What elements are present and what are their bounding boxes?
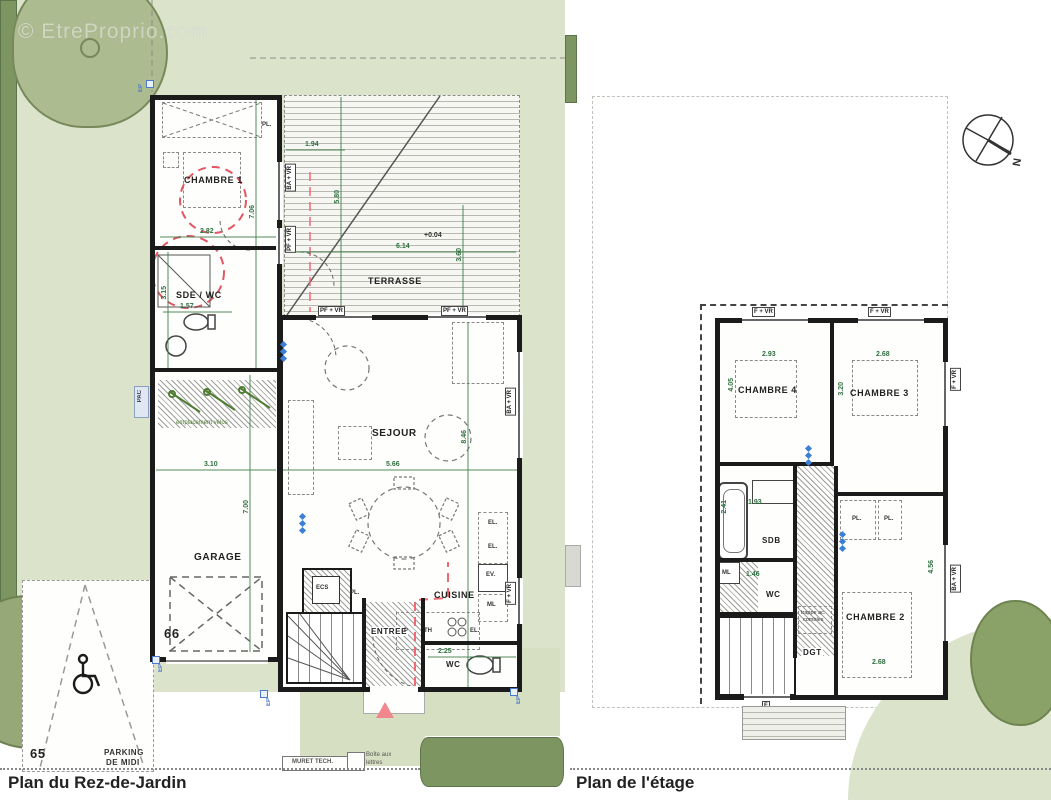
dim-wc-w: 1.46 <box>746 571 760 578</box>
dim-terrasse-h2: 3.60 <box>456 248 463 262</box>
dim-chambre1-h: 7.06 <box>249 205 256 219</box>
dim-sejour-h: 8.46 <box>461 430 468 444</box>
ep-marker-label: EP <box>266 698 272 706</box>
window-ch4-top <box>742 317 808 324</box>
vent-marker-ch2 <box>840 532 845 551</box>
vent-marker-sejour <box>281 342 286 361</box>
ml-upper-label: ML <box>722 570 731 576</box>
floor-plan-image: BA + VR PF + VR PF + VR PF + VR BA + VR … <box>0 0 1051 800</box>
ep-marker-label: EP <box>138 84 144 92</box>
partition-ch4-ch3 <box>830 322 834 466</box>
partition-ch3-bottom <box>834 492 944 496</box>
dim-ch2-w: 2.68 <box>872 659 886 666</box>
dim-sde-h: 3.15 <box>161 286 168 300</box>
entrance-triangle <box>376 702 394 718</box>
lot-number-66: 66 <box>164 626 180 641</box>
door-upper-bottom <box>744 694 790 701</box>
room-label-chambre1: CHAMBRE 1 <box>184 175 243 185</box>
window-tag-ch4: F + VR <box>752 307 775 317</box>
room-label-entree: ENTREE <box>370 627 408 636</box>
dim-cuisine-w: 2.25 <box>438 648 452 655</box>
upper-floor-title-divider <box>570 768 1051 770</box>
window-tag-ch2-right: BA + VR <box>950 565 961 593</box>
parking-label-line1: PARKING <box>104 748 144 757</box>
ep-marker-icon <box>510 688 518 696</box>
appliance-p: P <box>404 628 408 634</box>
closet-label-entree: PL. <box>350 590 359 596</box>
window-ch2-right <box>942 545 949 641</box>
dim-ch3-h: 3.20 <box>838 382 845 396</box>
dim-chambre1-w: 2.82 <box>200 228 214 235</box>
window-tag-ch3-right: F + VR <box>950 368 961 391</box>
window-tag-sejour-top2: PF + VR <box>441 306 468 316</box>
partition-wc-top <box>421 641 519 645</box>
vent-marker-palier <box>806 446 811 465</box>
dim-sdb-w: 1.93 <box>748 499 762 506</box>
appliance-ml: ML <box>487 602 496 608</box>
parking-label-line2: DE MIDI <box>106 758 140 767</box>
window-ch3-right <box>942 362 949 426</box>
watermark: © EtreProprio.com <box>18 20 208 44</box>
entrance-door-opening <box>370 686 418 694</box>
window-chambre1 <box>276 162 283 220</box>
appliance-ev: EV. <box>486 572 495 578</box>
room-label-wc-ground: WC <box>446 660 461 669</box>
window-sejour-right <box>516 352 523 458</box>
dim-ch3-w: 2.68 <box>876 351 890 358</box>
partition-ch4-bottom <box>719 462 834 466</box>
dim-terrasse-level: +0.04 <box>424 232 442 239</box>
room-label-sdb: SDB <box>762 536 781 545</box>
roof-edge-top <box>700 304 948 306</box>
dim-ch2-h: 4.56 <box>928 560 935 574</box>
partition-entree-left <box>362 598 366 688</box>
dim-garage-w: 3.10 <box>204 461 218 468</box>
trappe-label-line1: trappe ac. <box>801 610 825 616</box>
room-label-chambre2: CHAMBRE 2 <box>846 612 905 622</box>
partition-wc-stairs <box>719 612 797 616</box>
dim-terrasse-w1: 1.94 <box>305 141 319 148</box>
window-tag-chambre1: BA + VR <box>285 164 296 192</box>
closet-label-chambre1: PL. <box>262 122 271 128</box>
partition-ch2-left <box>834 466 838 696</box>
ground-floor-title-divider <box>0 768 420 770</box>
exterior-steps <box>742 706 846 740</box>
ep-marker-icon <box>260 690 268 698</box>
trappe-label-line2: combles <box>803 617 823 623</box>
closet2-upper-label: PL. <box>884 516 893 522</box>
ecs-label: ECS <box>316 585 328 591</box>
partition-sdb-wc <box>719 558 797 562</box>
window-tag-cuisine: F + VR <box>505 582 516 605</box>
dim-garage-h: 7.00 <box>243 500 250 514</box>
roof-edge-left <box>700 304 702 704</box>
dim-terrasse-w2: 6.14 <box>396 243 410 250</box>
dim-ch4-h: 4.05 <box>728 378 735 392</box>
room-label-garage: GARAGE <box>194 552 242 563</box>
ep-marker-icon <box>146 80 154 88</box>
room-label-sejour: SEJOUR <box>372 428 417 439</box>
dim-terrasse-h1: 5.80 <box>334 190 341 204</box>
mailbox-label-line1: Boîte aux <box>366 752 391 758</box>
room-label-dgt: DGT <box>802 648 823 657</box>
room-label-terrasse: TERRASSE <box>368 276 422 286</box>
upper-floor-title: Plan de l'étage <box>576 773 694 793</box>
ep-marker-label: EP <box>158 664 164 672</box>
window-tag-sejour-top1: PF + VR <box>318 306 345 316</box>
appliance-el-2: EL. <box>488 544 497 550</box>
window-tag-ch3: F + VR <box>868 307 891 317</box>
muret-tech-label: MURET TECH. <box>292 759 333 765</box>
appliance-th: TH <box>424 628 432 634</box>
dim-sde-w: 1.57 <box>180 303 194 310</box>
door-chambre1-terrasse <box>276 228 283 264</box>
window-ch3-top <box>858 317 924 324</box>
vent-marker-cuisine <box>300 514 305 533</box>
neighbor-wall <box>565 545 581 587</box>
partition-sde-garage <box>154 368 278 372</box>
mailbox-label-line2: lettres <box>366 760 382 766</box>
closet1-upper-label: PL. <box>852 516 861 522</box>
room-label-chambre3: CHAMBRE 3 <box>850 388 909 398</box>
bike-area-label: emplacement vélos <box>176 420 228 426</box>
dim-sdb-h: 2.41 <box>721 500 728 514</box>
ep-marker-icon <box>152 656 160 664</box>
ep-marker-label: EP <box>516 696 522 704</box>
right-panel-hedge-top <box>565 35 577 103</box>
partition-chambre1-sde <box>154 246 278 250</box>
pac-label: PAC <box>137 390 143 402</box>
dim-sejour-w: 5.66 <box>386 461 400 468</box>
window-cuisine-right <box>516 578 523 624</box>
room-label-chambre4: CHAMBRE 4 <box>738 385 797 395</box>
room-label-wc-upper: WC <box>766 590 781 599</box>
dim-ch4-w: 2.93 <box>762 351 776 358</box>
lot-number-65: 65 <box>30 746 46 761</box>
window-tag-sejour-right: BA + VR <box>505 388 516 416</box>
garage-door-line <box>166 660 268 662</box>
appliance-el-1: EL. <box>488 520 497 526</box>
ground-floor-title: Plan du Rez-de-Jardin <box>8 773 187 793</box>
door-tag-chambre1: PF + VR <box>285 226 296 253</box>
room-label-cuisine: CUISINE <box>434 590 475 600</box>
room-label-sde-wc: SDE / WC <box>176 290 222 300</box>
appliance-el-3: EL. <box>470 628 479 634</box>
